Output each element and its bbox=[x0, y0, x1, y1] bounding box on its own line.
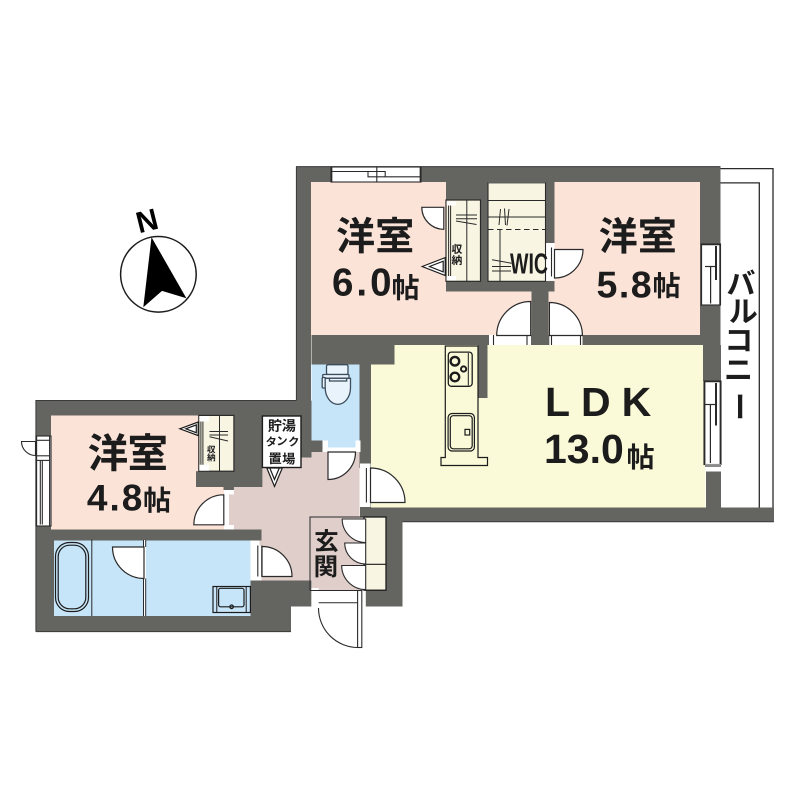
svg-text:5.8: 5.8 bbox=[597, 263, 654, 305]
svg-text:4.8: 4.8 bbox=[87, 478, 144, 519]
svg-text:WIC: WIC bbox=[510, 249, 548, 281]
svg-text:LDK: LDK bbox=[545, 379, 662, 425]
svg-text:13.0: 13.0 bbox=[544, 426, 624, 472]
svg-text:6.0: 6.0 bbox=[332, 262, 395, 305]
